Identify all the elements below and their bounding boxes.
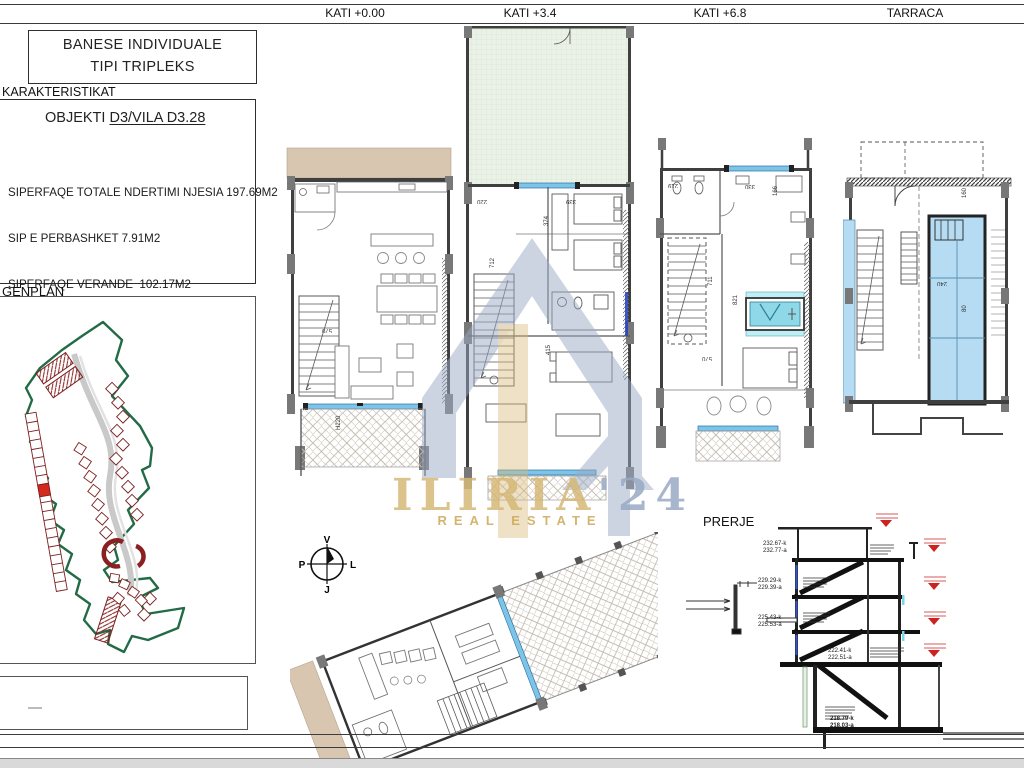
glass-window-top [728,166,790,171]
elevation-k: 229.29-k [758,578,782,585]
glass-door-bottom [498,470,596,475]
stairs [299,296,339,396]
dashed-outline [861,142,983,178]
dim-label: 220 [477,198,487,204]
bar-stools [378,253,425,264]
elevation-a: 225.53-a [758,622,782,629]
elevation-pair: 225.43-k 225.53-a [758,615,782,629]
dim-label: H220 [336,416,342,430]
elevation-a: 229.39-a [758,585,782,592]
bathroom [552,292,614,330]
title-line-2: TIPI TRIPLEKS [29,57,256,79]
notes-mark [28,707,42,709]
genplan-site-map [0,298,252,660]
elevation-k: 232.67-k [763,541,787,548]
dim-label: 374 [544,216,550,226]
stairs [668,238,706,344]
roof-band [287,148,451,178]
characteristics-heading: KARAKTERISTIKAT [2,85,116,99]
dim-label: 80 [962,305,968,312]
dim-label: 711 [708,276,714,286]
footer-rule-1 [0,734,1024,735]
elevation-a: 232.77-a [763,548,787,555]
dim-label: 415 [546,345,552,355]
bed-3 [556,352,612,382]
plan-tarraca [843,138,1017,468]
plan-kati-34 [456,24,642,502]
dim-label: 570 [322,327,332,333]
stairs [857,230,917,350]
elevation-pair: 218.79-k 218.03-a [830,716,854,730]
living-room [335,344,413,399]
level-label-kati-0: KATI +0.00 [325,6,384,20]
dim-label: 821 [733,295,739,305]
elevation-a: 218.03-a [830,723,854,730]
elevation-pair: 232.67-k 232.77-a [763,541,787,555]
window-bars [796,565,901,656]
object-title: OBJEKTI D3/VILA D3.28 [45,110,205,126]
elevation-k: 218.79-k [830,716,854,723]
glass-door-bottom [698,426,778,431]
wall-hatch [804,242,810,400]
dim-label: 712 [490,258,496,268]
elevation-a: 222.51-a [828,655,852,662]
dim-label: 166 [773,186,779,196]
elevation-k: 222.41-k [828,648,852,655]
level-label-kati-68: KATI +6.8 [694,6,747,20]
object-value: D3/VILA D3.28 [109,110,205,126]
door-arc [895,186,915,206]
bathtub [746,292,804,336]
dim-label: 160 [962,188,968,198]
top-wall [847,178,1011,186]
watermark-tagline: REAL ESTATE [420,513,620,528]
dim-label: 339 [566,198,576,204]
kitchen-counter [337,182,447,192]
elevation-pair: 222.41-k 222.51-a [828,648,852,662]
cyan-ticks [902,595,905,641]
level-markers [876,514,946,657]
char-item: SIPERFAQE TOTALE NDERTIMI NJESIA 197.69M… [8,185,278,200]
elevation-pair: 229.29-k 229.39-a [758,578,782,592]
wall-hatch [442,258,448,404]
drawing-sheet: KATI +0.00 KATI +3.4 KATI +6.8 TARRACA B… [0,0,1024,768]
elevation-k: 225.43-k [758,615,782,622]
object-label: OBJEKTI [45,110,105,126]
parapet-outline [873,404,1003,434]
kitchen-island [371,234,433,246]
garden-area [468,28,630,186]
title-block: BANESE INDIVIDUALE TIPI TRIPLEKS [28,30,257,84]
lounge-chairs [707,396,771,415]
window-strip [625,292,628,336]
balcony-paving [696,431,780,461]
plan-kati-0 [279,146,463,480]
footer-rule-2 [0,747,1024,748]
pool-left [843,220,855,403]
neighbor-stairs [991,230,1005,335]
terrace-paving [301,409,425,467]
bath-fixtures [672,176,805,264]
header-top-rule [0,4,1024,5]
level-label-kati-34: KATI +3.4 [504,6,557,20]
glass-window [518,183,576,188]
level-label-tarraca: TARRACA [887,6,943,20]
footer-gray-band [0,759,1024,768]
char-item: SIP E PERBASHKET 7.91M2 [8,231,278,246]
dim-label: 219 [668,182,678,188]
stairs [474,274,514,386]
notes-box [0,676,248,730]
dim-label: 240 [937,280,947,286]
title-line-1: BANESE INDIVIDUALE [29,35,256,57]
dim-label: 330 [745,183,755,189]
pool-right [929,216,985,404]
dim-label: 570 [702,355,712,361]
plan-rotated [290,532,658,768]
dining-set [377,274,437,324]
site-highlight-plot [38,483,51,497]
balcony-paving [488,476,606,500]
